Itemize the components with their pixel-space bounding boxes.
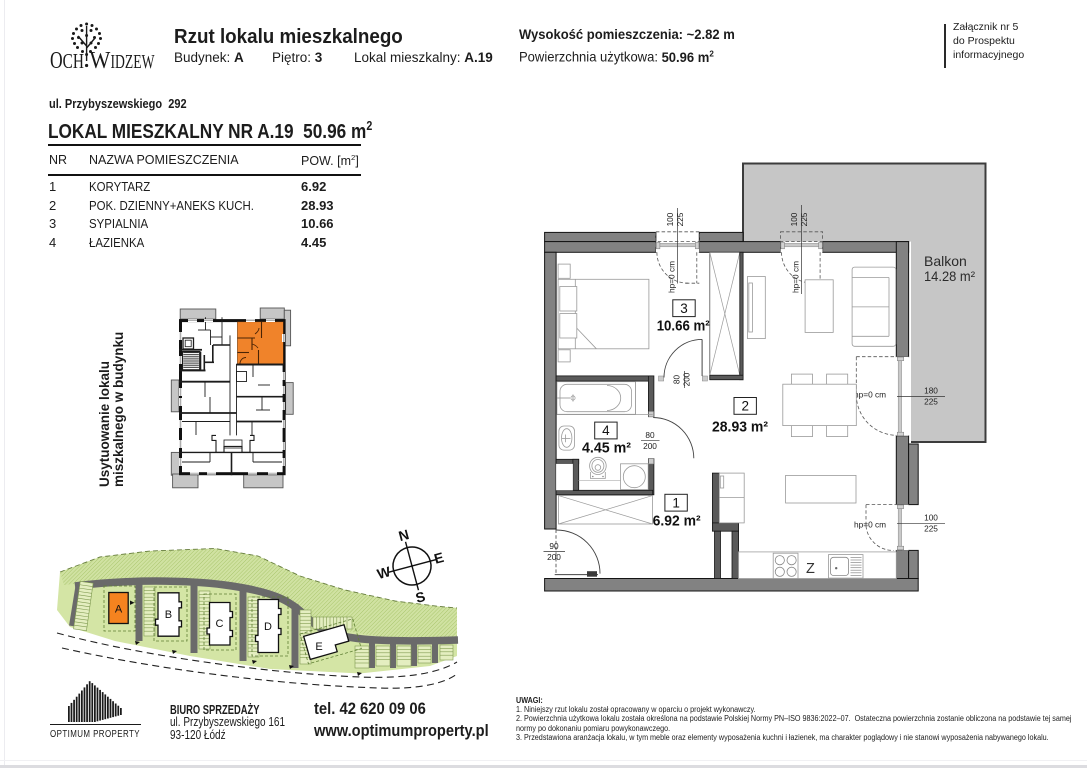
svg-text:10.66 m²: 10.66 m²: [657, 319, 710, 335]
svg-text:C: C: [216, 618, 224, 630]
svg-text:100: 100: [924, 512, 938, 522]
svg-text:225: 225: [924, 397, 938, 407]
svg-text:hp=0 cm: hp=0 cm: [854, 519, 886, 529]
svg-text:OPTIMUM PROPERTY: OPTIMUM PROPERTY: [50, 729, 140, 740]
svg-text:4: 4: [602, 423, 610, 438]
svg-text:W: W: [375, 563, 393, 582]
svg-text:E: E: [315, 641, 322, 653]
svg-text:225: 225: [924, 523, 938, 533]
svg-text:100: 100: [789, 212, 799, 226]
svg-text:S: S: [414, 588, 427, 606]
svg-text:E: E: [432, 549, 445, 567]
svg-text:B: B: [165, 609, 172, 621]
svg-text:180: 180: [924, 386, 938, 396]
svg-text:hp=0 cm: hp=0 cm: [854, 389, 886, 399]
svg-text:2: 2: [741, 399, 749, 414]
svg-text:28.93 m²: 28.93 m²: [712, 420, 768, 436]
svg-text:hp=0 cm: hp=0 cm: [667, 261, 677, 293]
svg-text:CH: CH: [63, 50, 84, 73]
svg-text:200: 200: [643, 441, 657, 451]
svg-text:W: W: [90, 46, 111, 73]
svg-text:225: 225: [675, 212, 685, 226]
svg-text:225: 225: [799, 212, 809, 226]
svg-text:Balkon: Balkon: [924, 253, 967, 269]
svg-text:1: 1: [672, 495, 680, 510]
svg-text:200: 200: [682, 372, 692, 386]
svg-text:6.92 m²: 6.92 m²: [653, 514, 701, 530]
svg-text:Z: Z: [806, 561, 815, 577]
svg-text:D: D: [264, 621, 272, 633]
svg-text:80: 80: [672, 375, 682, 385]
svg-text:4.45 m²: 4.45 m²: [582, 441, 631, 457]
svg-text:A: A: [115, 604, 123, 616]
svg-text:N: N: [397, 526, 411, 544]
svg-text:90: 90: [549, 541, 559, 551]
svg-text:3: 3: [680, 301, 688, 316]
svg-text:O: O: [50, 46, 63, 73]
svg-text:200: 200: [547, 552, 561, 562]
svg-text:hp=0 cm: hp=0 cm: [791, 261, 801, 293]
svg-text:80: 80: [645, 430, 655, 440]
svg-text:14.28 m²: 14.28 m²: [924, 269, 975, 284]
svg-text:IDZEW: IDZEW: [111, 51, 155, 73]
svg-text:100: 100: [665, 212, 675, 226]
